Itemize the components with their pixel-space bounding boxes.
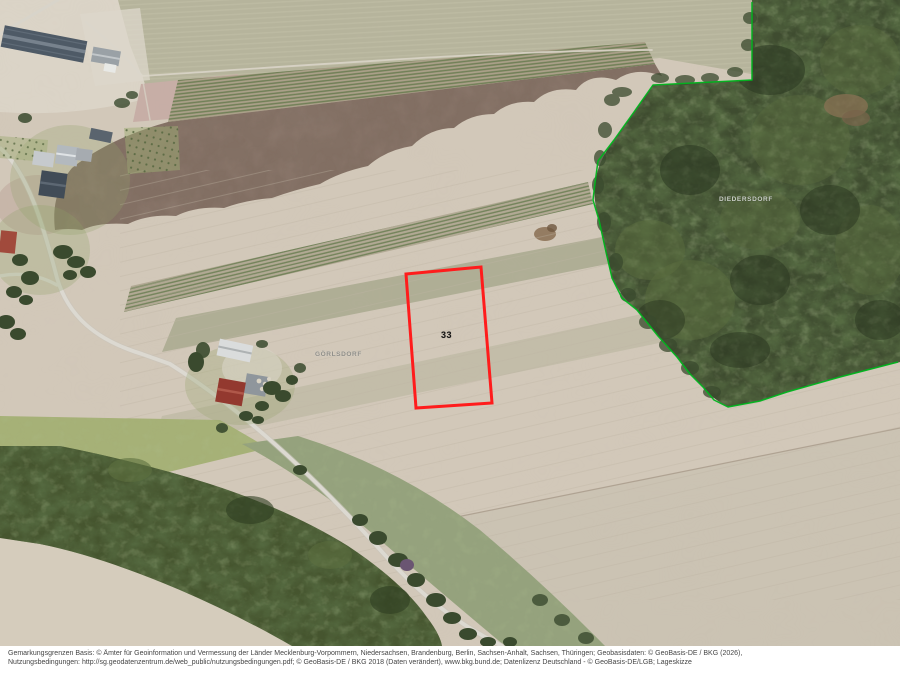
aerial-photo [0, 0, 900, 646]
attribution-footer: Gemarkungsgrenzen Basis: © Ämter für Geo… [0, 646, 900, 675]
attribution-line-2: Nutzungsbedingungen: http://sg.geodatenz… [8, 658, 892, 667]
aerial-map: GÖRLSDORF DIEDERSDORF 33 [0, 0, 900, 646]
lageskizze: GÖRLSDORF DIEDERSDORF 33 Gemarkungsgrenz… [0, 0, 900, 675]
farm-house [215, 378, 246, 406]
attribution-line-1: Gemarkungsgrenzen Basis: © Ämter für Geo… [8, 649, 892, 658]
